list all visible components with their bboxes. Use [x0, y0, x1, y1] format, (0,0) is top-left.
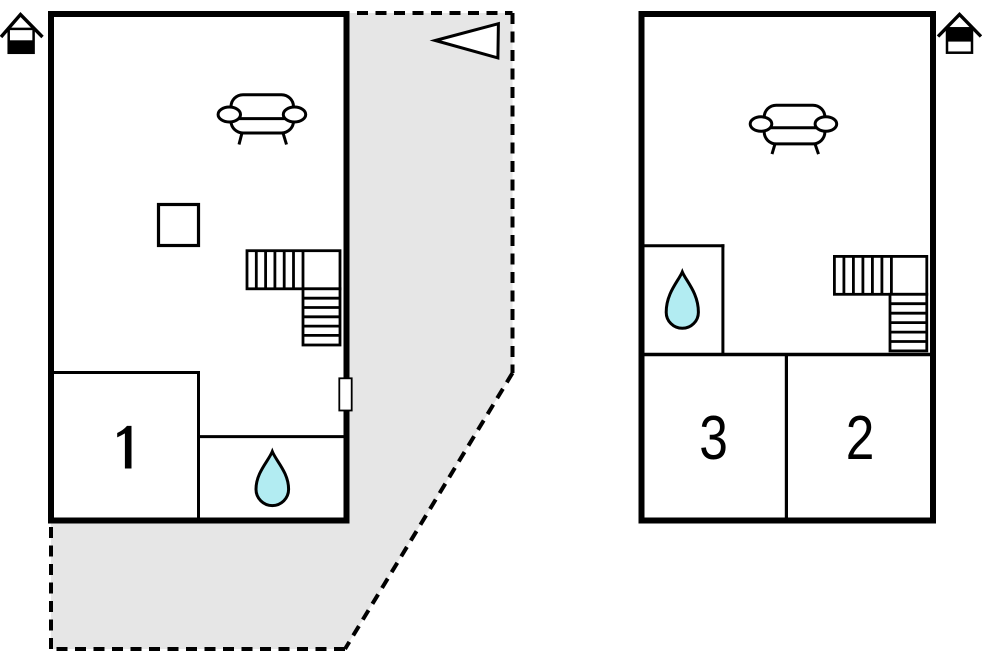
svg-text:3: 3 — [699, 404, 728, 474]
svg-text:2: 2 — [846, 404, 875, 474]
